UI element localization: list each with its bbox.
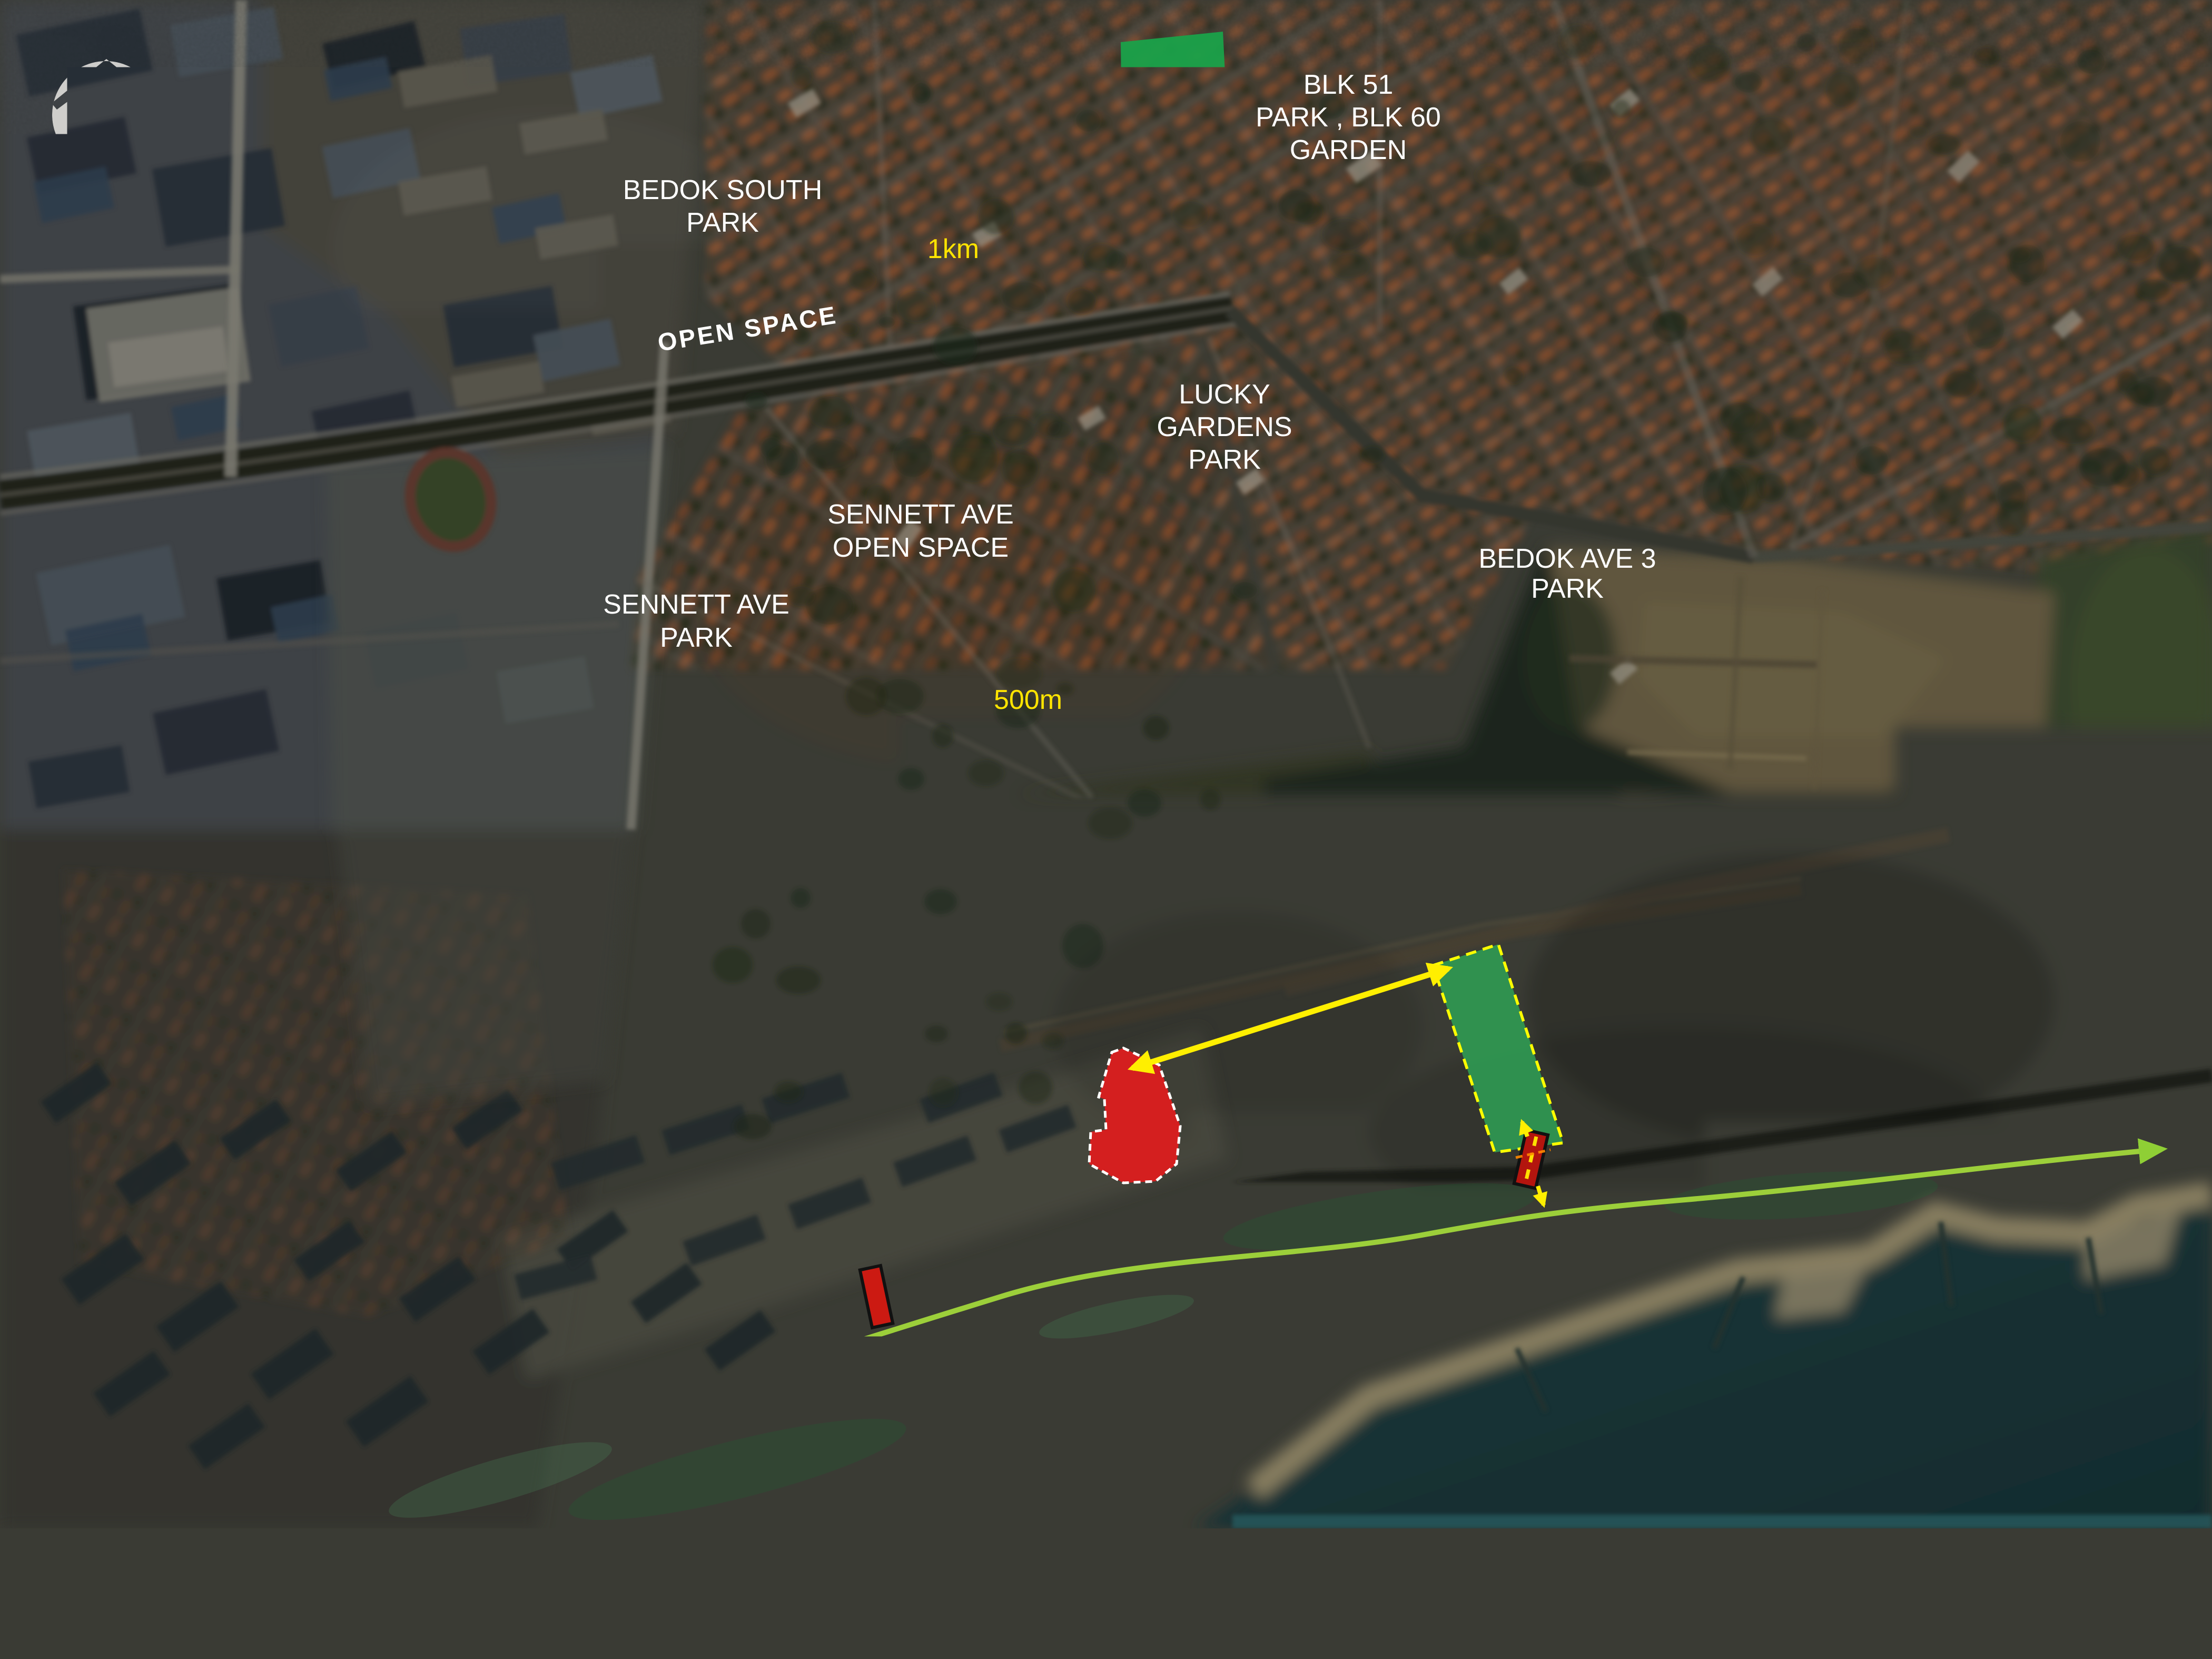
svg-text:EAST COAST: EAST COAST [843, 1397, 1016, 1427]
svg-text:PARK: PARK [893, 1430, 966, 1460]
svg-text:PARK: PARK [686, 208, 759, 238]
svg-text:BEDOK SOUTH: BEDOK SOUTH [623, 175, 823, 205]
svg-text:GARDEN: GARDEN [1290, 135, 1407, 165]
svg-text:PARK: PARK [660, 623, 733, 653]
svg-text:Overhead: Overhead [1558, 1184, 1678, 1214]
svg-text:DRIVING: DRIVING [2097, 797, 2198, 825]
svg-text:BAYSHORE: BAYSHORE [1534, 1003, 1681, 1033]
svg-text:EAST COAST/SIGLAP: EAST COAST/SIGLAP [1645, 1439, 2187, 1487]
svg-text:BLK 51: BLK 51 [1303, 70, 1394, 100]
svg-text:and Underpass: and Underpass [662, 1267, 848, 1298]
svg-text:LAGUNA: LAGUNA [2097, 765, 2197, 793]
svg-text:PARK: PARK [1572, 1064, 1643, 1094]
svg-text:500m: 500m [994, 685, 1062, 715]
svg-text:Park Connector: Park Connector [1140, 1261, 1312, 1289]
svg-text:SENNETT AVE: SENNETT AVE [603, 589, 789, 620]
svg-text:1km: 1km [927, 234, 979, 264]
svg-text:Bridge: Bridge [1558, 1217, 1637, 1247]
svg-text:SENNETT AVE: SENNETT AVE [827, 499, 1014, 530]
svg-text:LUCKY: LUCKY [1179, 379, 1270, 410]
svg-text:SITE: SITE [1091, 1105, 1145, 1132]
svg-text:(FUTURE): (FUTURE) [1544, 973, 1671, 1003]
svg-text:To East Cost Park: To East Cost Park [629, 1300, 848, 1330]
svg-text:BEDOK AVE 3: BEDOK AVE 3 [1478, 544, 1656, 574]
svg-text:GARDENS: GARDENS [1157, 412, 1292, 442]
svg-text:400m: 400m [959, 1249, 1022, 1277]
svg-text:PARK , BLK 60: PARK , BLK 60 [1256, 102, 1441, 133]
svg-text:RANGE/: RANGE/ [2101, 829, 2194, 857]
svg-text:( Future ): ( Future ) [1558, 1151, 1671, 1182]
svg-text:GREEN SPACES: GREEN SPACES [1501, 1305, 2180, 1413]
svg-text:Existing Footpath: Existing Footpath [636, 1235, 848, 1265]
svg-text:CENTRAL: CENTRAL [1545, 1034, 1670, 1064]
svg-text:MINDEF: MINDEF [2101, 860, 2194, 887]
svg-text:PARK: PARK [1188, 445, 1261, 475]
svg-text:PARK: PARK [1531, 574, 1604, 604]
svg-text:OPEN SPACE: OPEN SPACE [833, 532, 1009, 563]
